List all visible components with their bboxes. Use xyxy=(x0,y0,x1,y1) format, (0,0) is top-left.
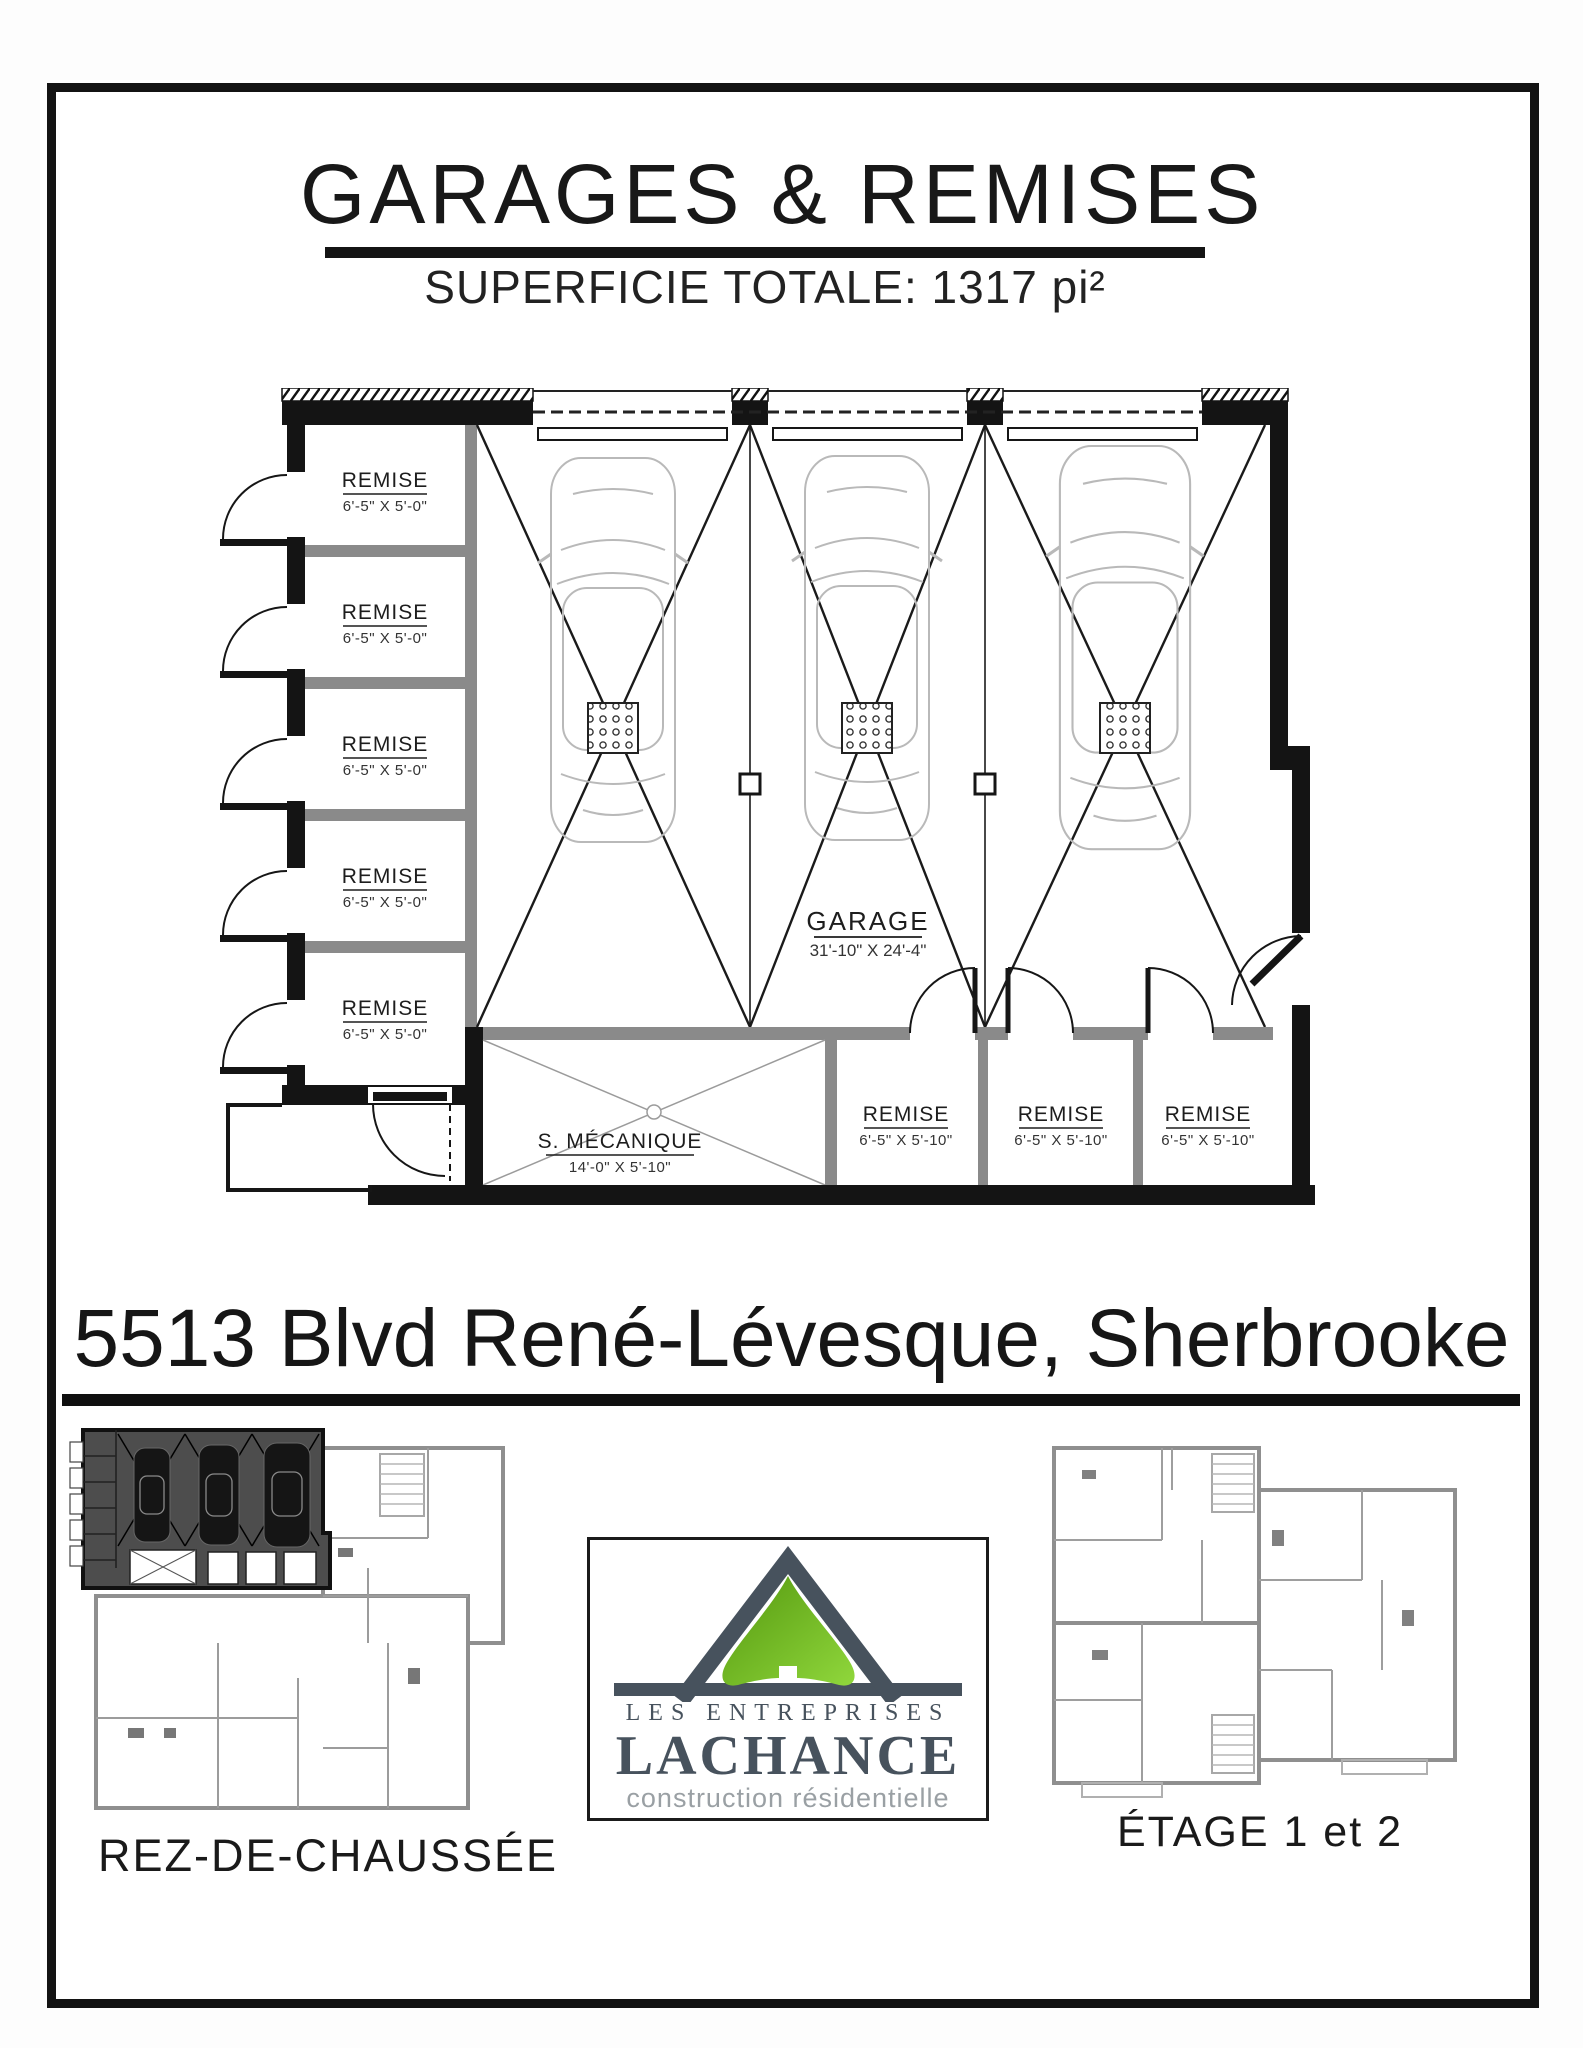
exterior-wall-right xyxy=(1232,401,1310,1185)
garage-door-panels xyxy=(538,428,1197,440)
etage-label: ÉTAGE 1 et 2 xyxy=(1040,1808,1480,1857)
logo-line1: LES ENTREPRISES xyxy=(590,1700,986,1727)
door-opener-posts xyxy=(740,774,995,794)
exterior-wall-left xyxy=(283,401,309,1085)
remise-dims: 6'-5" X 5'-10" xyxy=(859,1132,952,1149)
logo-line2: LACHANCE xyxy=(590,1724,986,1788)
remise-label: REMISE xyxy=(342,733,429,756)
address-underline xyxy=(62,1394,1520,1406)
remise-dims: 6'-5" X 5'-0" xyxy=(343,762,428,779)
remise-label: REMISE xyxy=(342,997,429,1020)
garage-floor-plan: REMISE 6'-5" X 5'-0" REMISE 6'-5" X 5'-0… xyxy=(220,388,1330,1210)
rdc-label: REZ-DE-CHAUSSÉE xyxy=(98,1830,538,1882)
remise-label: REMISE xyxy=(1165,1103,1252,1126)
remise-partitions xyxy=(305,425,477,1027)
remise-dims: 6'-5" X 5'-0" xyxy=(343,894,428,911)
title-underline xyxy=(325,247,1205,258)
remise-dims: 6'-5" X 5'-0" xyxy=(343,630,428,647)
rdc-garage-highlight xyxy=(70,1430,330,1588)
page-title: GARAGES & REMISES xyxy=(300,146,1220,243)
mechanical-room-label: S. MÉCANIQUE xyxy=(538,1130,703,1153)
exterior-wall-bottom xyxy=(368,1185,1315,1205)
mechanical-room-dims: 14'-0" X 5'-10" xyxy=(569,1159,671,1176)
logo-line3: construction résidentielle xyxy=(590,1783,986,1814)
garage-rear-wall xyxy=(477,1027,1273,1040)
remise-label: REMISE xyxy=(342,469,429,492)
total-area-subtitle: SUPERFICIE TOTALE: 1317 pi² xyxy=(365,260,1165,314)
floor-pads xyxy=(588,703,1150,753)
remise-label: REMISE xyxy=(863,1103,950,1126)
etage-thumbnail-plan xyxy=(1022,1430,1467,1805)
remise-label: REMISE xyxy=(1018,1103,1105,1126)
lachance-logo-mark xyxy=(590,1544,986,1702)
lachance-logo: LES ENTREPRISES LACHANCE construction ré… xyxy=(587,1537,989,1821)
remise-label: REMISE xyxy=(342,865,429,888)
remise-doors-left xyxy=(220,475,287,1074)
remise-dims: 6'-5" X 5'-10" xyxy=(1014,1132,1107,1149)
remise-dims: 6'-5" X 5'-0" xyxy=(343,1026,428,1043)
logo-baseline xyxy=(614,1683,962,1696)
remise-dims: 6'-5" X 5'-0" xyxy=(343,498,428,515)
exterior-wall-top xyxy=(282,388,1288,425)
rdc-thumbnail-plan xyxy=(68,1418,518,1818)
bottom-remise-doors xyxy=(910,968,1213,1033)
garage-label: GARAGE xyxy=(806,906,929,936)
garage-dims: 31'-10" X 24'-4" xyxy=(810,941,927,960)
remise-dims: 6'-5" X 5'-10" xyxy=(1161,1132,1254,1149)
property-address: 5513 Blvd René-Lévesque, Sherbrooke xyxy=(60,1292,1523,1386)
remise-label: REMISE xyxy=(342,601,429,624)
